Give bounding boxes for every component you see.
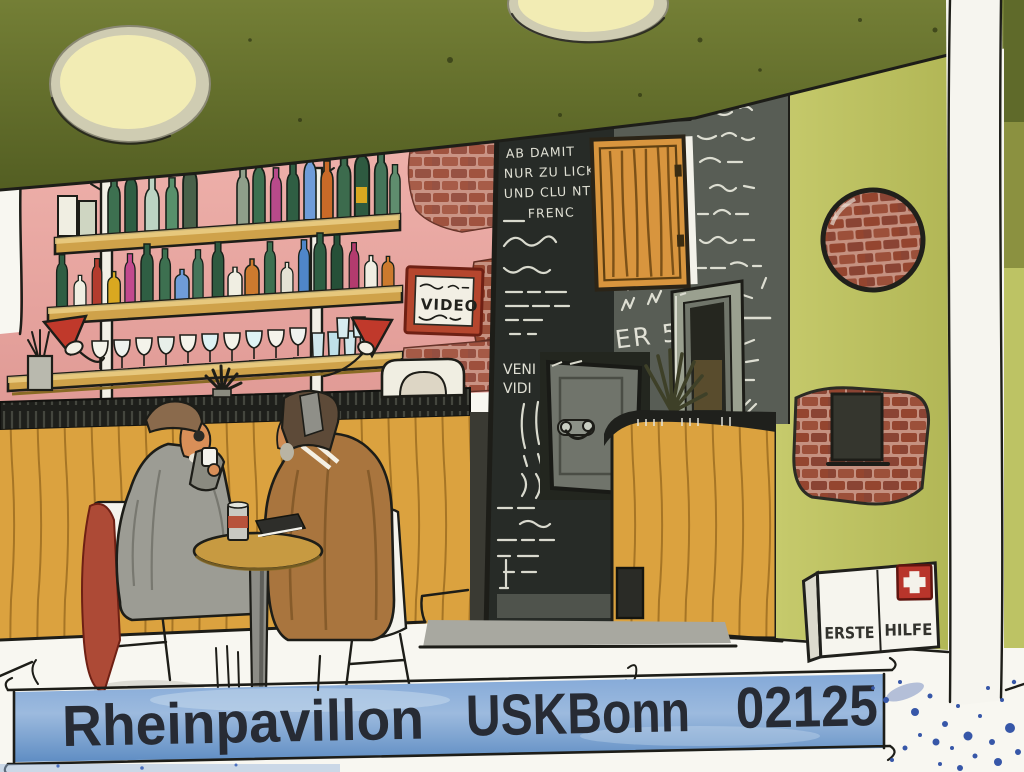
white-column <box>946 0 1006 706</box>
wall-brick-patch <box>794 388 929 504</box>
ceiling-light-left <box>50 26 210 144</box>
drink-can <box>228 502 248 540</box>
arch-object <box>382 359 464 397</box>
wall-niche <box>832 394 882 460</box>
right-edge-wall <box>1004 0 1024 690</box>
man-right-headband <box>300 392 323 436</box>
banner-group: USKBonn <box>465 679 690 749</box>
banner-venue: Rheinpavillon <box>61 687 424 760</box>
first-aid-box: ERSTE HILFE <box>803 563 939 661</box>
man-left-glasses <box>194 431 205 442</box>
bar-interior-painting: VIDEO <box>0 0 1024 772</box>
red-cross-icon <box>897 565 932 600</box>
first-aid-label-right: HILFE <box>884 620 932 640</box>
boxes-on-shelf <box>58 196 96 236</box>
man-right-beard <box>280 443 294 461</box>
first-aid-label-left: ERSTE <box>824 623 874 643</box>
banner-number: 02125 <box>735 673 878 741</box>
right-counter <box>604 410 782 641</box>
sketch-canvas: VIDEO <box>0 0 1024 772</box>
man-left-hand <box>208 464 220 476</box>
table-leg <box>250 566 268 692</box>
